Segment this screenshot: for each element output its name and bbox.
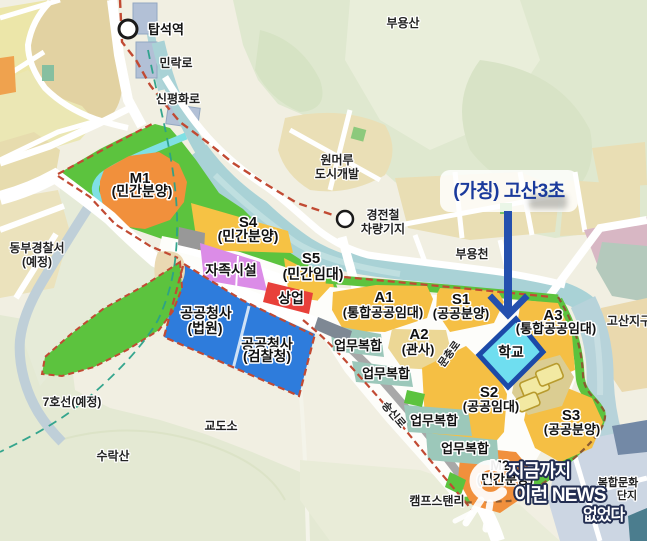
svg-text:자족시설: 자족시설: [205, 262, 257, 278]
svg-text:학교: 학교: [498, 344, 524, 360]
svg-text:업무복합: 업무복합: [441, 441, 489, 456]
svg-text:업무복합: 업무복합: [334, 338, 382, 353]
svg-text:(민간분양): (민간분양): [112, 183, 173, 199]
svg-text:없었다: 없었다: [583, 505, 625, 524]
svg-text:A1: A1: [374, 289, 393, 306]
svg-text:(공공임대): (공공임대): [463, 399, 520, 414]
svg-text:신평화로: 신평화로: [156, 91, 200, 106]
svg-text:탑석역: 탑석역: [148, 22, 184, 37]
svg-text:(관사): (관사): [402, 342, 435, 357]
svg-text:(통합공공임대): (통합공공임대): [343, 305, 423, 320]
svg-text:(민간분양): (민간분양): [218, 228, 279, 244]
svg-text:(검찰청): (검찰청): [243, 348, 291, 364]
svg-text:이런 NEWS: 이런 NEWS: [514, 484, 606, 506]
svg-text:(공공분양): (공공분양): [544, 422, 601, 437]
svg-text:수락산: 수락산: [96, 448, 129, 463]
svg-text:(통합공공임대): (통합공공임대): [516, 321, 596, 336]
svg-text:S5: S5: [302, 250, 320, 267]
svg-text:공공청사: 공공청사: [180, 305, 232, 321]
svg-text:경전철: 경전철: [366, 207, 399, 222]
svg-text:고산지구: 고산지구: [607, 313, 647, 328]
svg-text:차량기지: 차량기지: [361, 221, 405, 236]
svg-text:캠프스탠리: 캠프스탠리: [409, 493, 464, 508]
svg-text:도시개발: 도시개발: [315, 166, 359, 181]
svg-text:부용천: 부용천: [455, 246, 488, 261]
svg-text:교도소: 교도소: [204, 419, 237, 433]
svg-text:상업: 상업: [278, 290, 304, 306]
svg-text:(법원): (법원): [187, 320, 222, 336]
svg-text:업무복합: 업무복합: [410, 413, 458, 428]
svg-text:7호선(예정): 7호선(예정): [43, 394, 102, 409]
svg-text:업무복합: 업무복합: [362, 366, 410, 381]
svg-text:동부경찰서: 동부경찰서: [9, 240, 64, 255]
svg-text:지금까지: 지금까지: [508, 461, 570, 481]
svg-text:부용산: 부용산: [386, 15, 419, 30]
svg-text:민락로: 민락로: [159, 55, 192, 70]
svg-text:(공공분양): (공공분양): [433, 306, 490, 321]
svg-text:(민간임대): (민간임대): [283, 266, 344, 282]
svg-text:A2: A2: [409, 326, 428, 343]
svg-text:단지: 단지: [617, 488, 637, 502]
svg-text:(가칭) 고산3초: (가칭) 고산3초: [453, 180, 564, 202]
svg-text:(예정): (예정): [22, 254, 52, 269]
svg-text:원머루: 원머루: [320, 152, 353, 167]
